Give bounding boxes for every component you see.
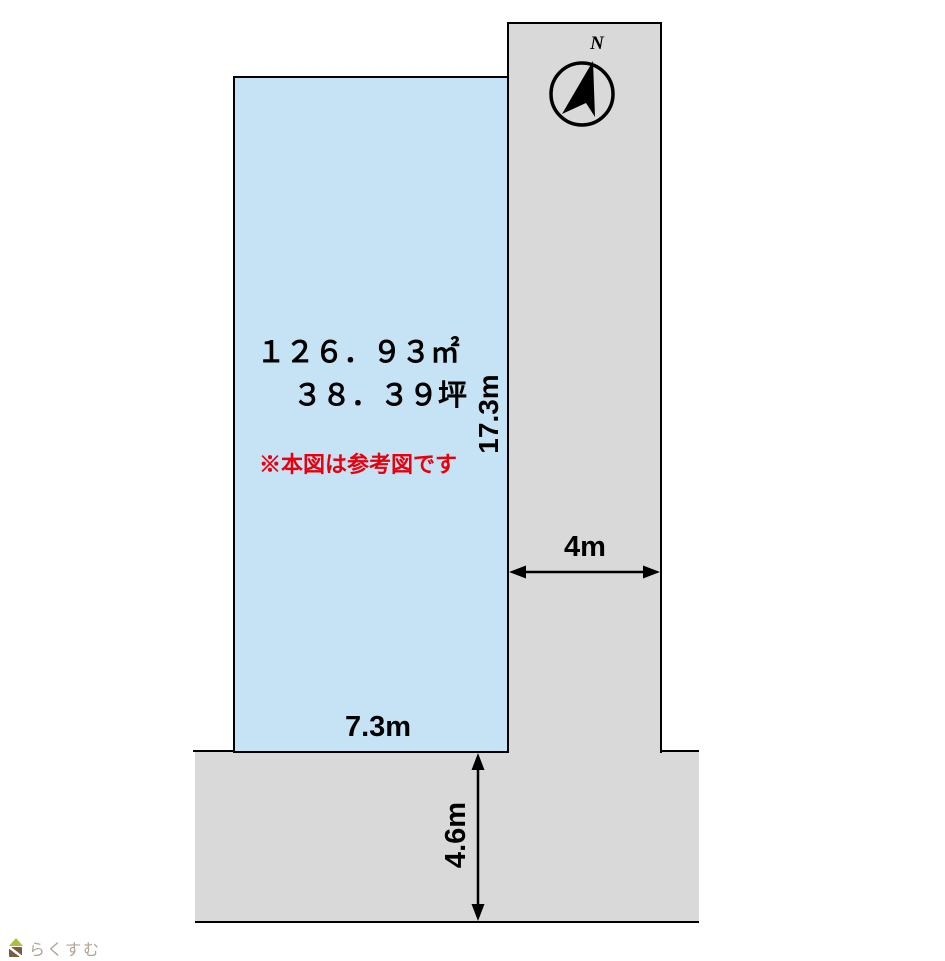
plot-area-sqm-label: １２６．９３㎡ [233,329,483,371]
rakusumu-logo: らくすむ [8,936,101,960]
house-icon [8,938,23,958]
reference-note-label: ※本図は参考図です [223,447,493,479]
rakusumu-logo-text: らくすむ [29,936,101,960]
site-plan-diagram: １２６．９３㎡ ３８．３９坪 ※本図は参考図です 17.3m 7.3m 4m 4… [0,0,945,961]
south-road-top-edge-left [193,750,236,752]
east-road-width-label: 4m [525,531,645,564]
plot-area-tsubo-label: ３８．３９坪 [250,372,510,414]
plot-depth-dimension-label: 17.3m [474,354,504,474]
east-road [507,22,662,753]
house-roof-shape [9,938,23,946]
house-body-shape [9,947,22,957]
south-road-width-label: 4.6m [441,775,471,895]
plot-frontage-dimension-label: 7.3m [318,711,438,744]
south-road-top-edge-right [660,750,699,752]
compass-north-label: N [577,33,617,55]
land-plot [233,76,509,753]
